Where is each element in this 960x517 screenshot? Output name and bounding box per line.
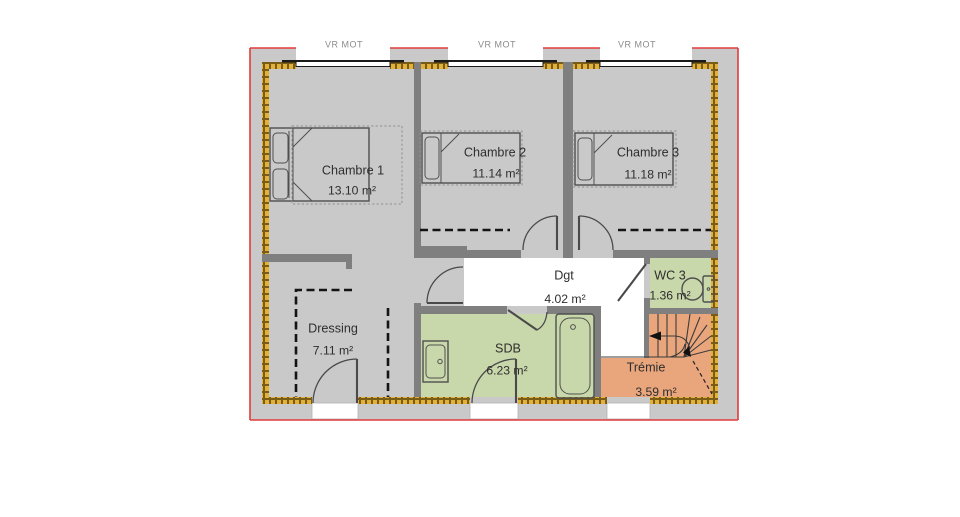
room-name-label: Chambre 3: [617, 146, 679, 160]
room-name-label: Trémie: [627, 361, 666, 375]
room-area-label: 7.11 m²: [313, 344, 353, 358]
room-area-label: 13.10 m²: [328, 184, 376, 198]
window-3: [586, 60, 706, 67]
wall-sdb-top-west: [421, 306, 507, 314]
room-name-label: SDB: [495, 342, 521, 356]
wall-hall-top: [467, 250, 521, 258]
window-1: [282, 60, 404, 67]
wall-sdb-top-east: [547, 306, 601, 314]
wall-stair-west: [644, 314, 649, 358]
wall-sdb-right: [594, 306, 601, 397]
insulation-strip: [262, 397, 312, 404]
room-name-label: WC 3: [654, 269, 685, 283]
room-area-label: 4.02 m²: [544, 292, 585, 306]
room-area-label: 6.23 m²: [486, 364, 527, 378]
wall-wc3-stub-top: [644, 258, 650, 264]
window-opening-bottom: [607, 403, 650, 419]
insulation-strip: [262, 62, 269, 404]
room-name-label: Dgt: [554, 269, 574, 283]
shutter-label-3: VR MOT: [618, 40, 656, 50]
room-area-label: 11.14 m²: [472, 167, 519, 181]
room-name-label: Chambre 1: [322, 164, 384, 178]
room-name-label: Chambre 2: [464, 146, 526, 160]
room-area-label: 3.59 m²: [635, 385, 676, 399]
wall-chambre2-chambre3: [563, 62, 573, 258]
wall-dressing-sdb: [414, 303, 421, 397]
wall-hall-top-east: [613, 250, 718, 258]
door-opening-bottom-1: [312, 403, 358, 419]
room-area-label: 1.36 m²: [649, 289, 690, 303]
floor-plan-page: VR MOT VR MOT VR MOT Chambre 1 13.10 m² …: [0, 0, 960, 517]
window-2: [434, 60, 557, 67]
insulation-strip: [358, 397, 470, 404]
insulation-strip: [711, 62, 718, 404]
room-area-label: 11.18 m²: [624, 168, 671, 182]
windows: [282, 60, 706, 67]
room-name-label: Dressing: [308, 322, 358, 336]
floor-plan-canvas: VR MOT VR MOT VR MOT Chambre 1 13.10 m² …: [0, 0, 960, 517]
wall-stub: [346, 262, 352, 269]
wall-hall-west: [414, 246, 467, 258]
shutter-label-1: VR MOT: [325, 40, 363, 50]
shutter-label-2: VR MOT: [478, 40, 516, 50]
wall-wc3-stair: [644, 308, 718, 314]
door-opening-bottom-2: [470, 403, 518, 419]
wall-chambre1-bottom: [262, 254, 352, 262]
room-sdb-floor: [421, 314, 594, 397]
